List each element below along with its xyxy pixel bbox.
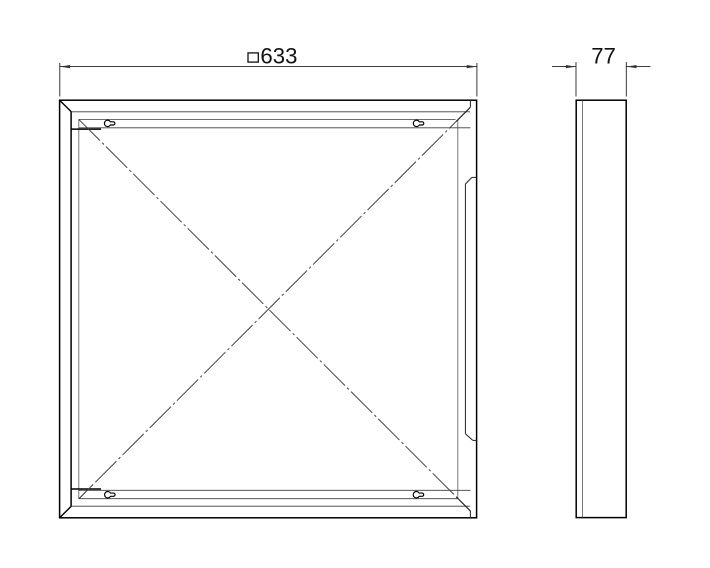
svg-text:633: 633 [260, 43, 297, 68]
svg-text:77: 77 [591, 43, 616, 68]
